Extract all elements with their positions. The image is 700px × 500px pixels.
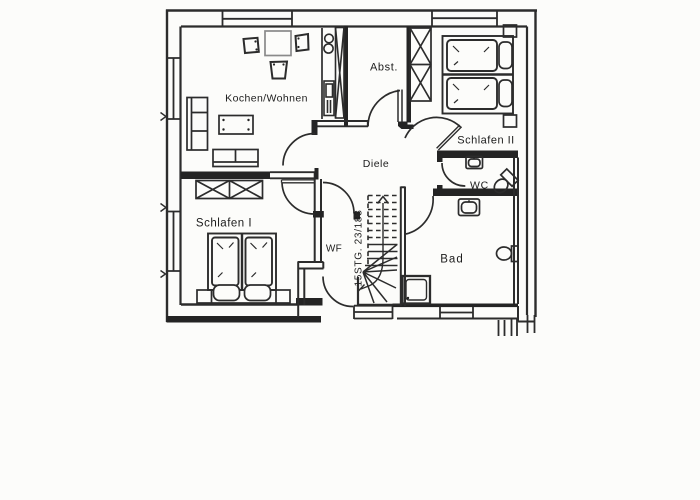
svg-text:Bad: Bad [440, 254, 463, 266]
svg-text:WC: WC [470, 180, 489, 192]
svg-text:Kochen/Wohnen: Kochen/Wohnen [225, 93, 308, 105]
svg-text:WF: WF [326, 244, 342, 255]
svg-text:Abst.: Abst. [370, 62, 398, 74]
svg-text:Schlafen II: Schlafen II [457, 135, 514, 147]
svg-text:Diele: Diele [363, 158, 389, 170]
svg-text:15STG. 23/183: 15STG. 23/183 [354, 210, 365, 287]
svg-text:Schlafen I: Schlafen I [196, 218, 252, 230]
